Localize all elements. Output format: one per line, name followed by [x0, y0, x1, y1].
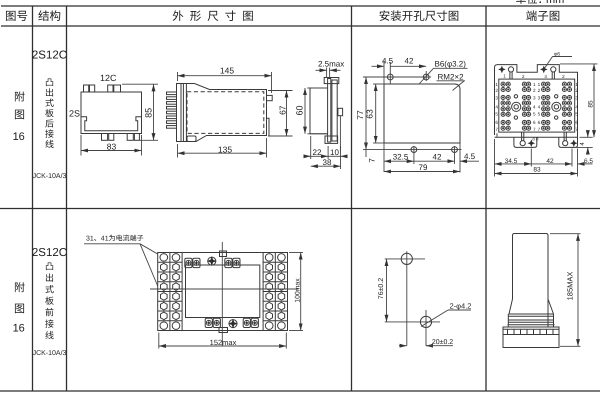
svg-text:5: 5 [533, 112, 536, 117]
svg-text:10: 10 [330, 148, 339, 157]
svg-text:2: 2 [575, 88, 578, 93]
svg-text:76±0.2: 76±0.2 [378, 278, 385, 299]
svg-text:JCK-10A/3: JCK-10A/3 [33, 172, 67, 180]
svg-text:152max: 152max [210, 338, 237, 347]
svg-text:145: 145 [220, 66, 234, 76]
svg-text:8: 8 [496, 133, 499, 138]
svg-text:41: 41 [101, 236, 109, 243]
svg-text:7: 7 [495, 127, 498, 132]
svg-text:34.5: 34.5 [505, 158, 518, 165]
svg-text:42: 42 [433, 153, 442, 162]
svg-text:7: 7 [538, 127, 541, 132]
svg-text:4.5: 4.5 [464, 152, 476, 161]
svg-text:1: 1 [495, 82, 498, 87]
svg-text:77: 77 [355, 110, 365, 120]
svg-text:4: 4 [538, 105, 541, 110]
svg-text:4: 4 [495, 105, 498, 110]
svg-text:22: 22 [313, 148, 322, 157]
svg-text:63: 63 [365, 109, 375, 119]
svg-text:3: 3 [544, 74, 547, 79]
svg-text:2: 2 [522, 74, 525, 79]
svg-text:135: 135 [218, 145, 232, 155]
svg-text:7: 7 [575, 127, 578, 132]
svg-text:83: 83 [107, 141, 117, 151]
svg-text:2S: 2S [69, 109, 80, 119]
svg-text:12C: 12C [100, 73, 117, 83]
svg-text:79: 79 [419, 163, 428, 172]
svg-text:7: 7 [533, 127, 536, 132]
svg-text:100max: 100max [295, 278, 302, 303]
svg-text:JCK-10A/3: JCK-10A/3 [33, 349, 67, 357]
svg-text:185MAX: 185MAX [566, 272, 575, 301]
svg-text:2: 2 [562, 74, 565, 79]
svg-text:4.5: 4.5 [382, 57, 394, 66]
svg-text:2: 2 [533, 88, 536, 93]
svg-text:6: 6 [533, 120, 536, 125]
svg-text:1: 1 [503, 74, 506, 79]
svg-text:16: 16 [13, 131, 25, 143]
svg-text:5: 5 [575, 112, 578, 117]
svg-text:4: 4 [575, 105, 578, 110]
svg-text:2S12C: 2S12C [32, 247, 67, 259]
svg-text:1: 1 [533, 82, 536, 87]
svg-text:6: 6 [538, 120, 541, 125]
svg-text:85: 85 [587, 100, 594, 108]
svg-text:3: 3 [538, 96, 541, 101]
svg-text:B6(φ3.2): B6(φ3.2) [435, 60, 467, 69]
svg-text:1: 1 [538, 82, 541, 87]
svg-text:42: 42 [546, 158, 554, 165]
svg-text:67: 67 [278, 105, 288, 115]
svg-text:5: 5 [495, 112, 498, 117]
svg-text:2S12C: 2S12C [32, 50, 67, 62]
svg-text:20±0.2: 20±0.2 [432, 339, 453, 346]
svg-text:2-φ4.2: 2-φ4.2 [450, 301, 472, 310]
svg-text:7: 7 [368, 158, 377, 163]
svg-text:6: 6 [495, 120, 498, 125]
svg-text:42: 42 [405, 57, 414, 66]
svg-text:6.5: 6.5 [584, 158, 593, 165]
svg-text:31: 31 [86, 236, 94, 243]
svg-text:3: 3 [575, 96, 578, 101]
svg-text:3: 3 [533, 96, 536, 101]
svg-text:4: 4 [579, 142, 586, 146]
svg-text:4: 4 [533, 105, 536, 110]
svg-text:16: 16 [13, 323, 25, 335]
svg-text:38: 38 [323, 158, 332, 167]
svg-text:2.5max: 2.5max [318, 59, 344, 68]
svg-text:1: 1 [575, 82, 578, 87]
svg-text:2: 2 [495, 88, 498, 93]
svg-text:32.5: 32.5 [393, 153, 409, 162]
svg-text:mm: mm [546, 0, 564, 6]
svg-text:85: 85 [143, 108, 153, 118]
svg-text:6: 6 [575, 120, 578, 125]
svg-text:3: 3 [495, 96, 498, 101]
svg-text:5: 5 [538, 112, 541, 117]
svg-text:83: 83 [533, 167, 541, 174]
svg-text:2: 2 [538, 88, 541, 93]
svg-text:60: 60 [295, 105, 305, 115]
svg-text:RM2×2: RM2×2 [438, 72, 465, 81]
